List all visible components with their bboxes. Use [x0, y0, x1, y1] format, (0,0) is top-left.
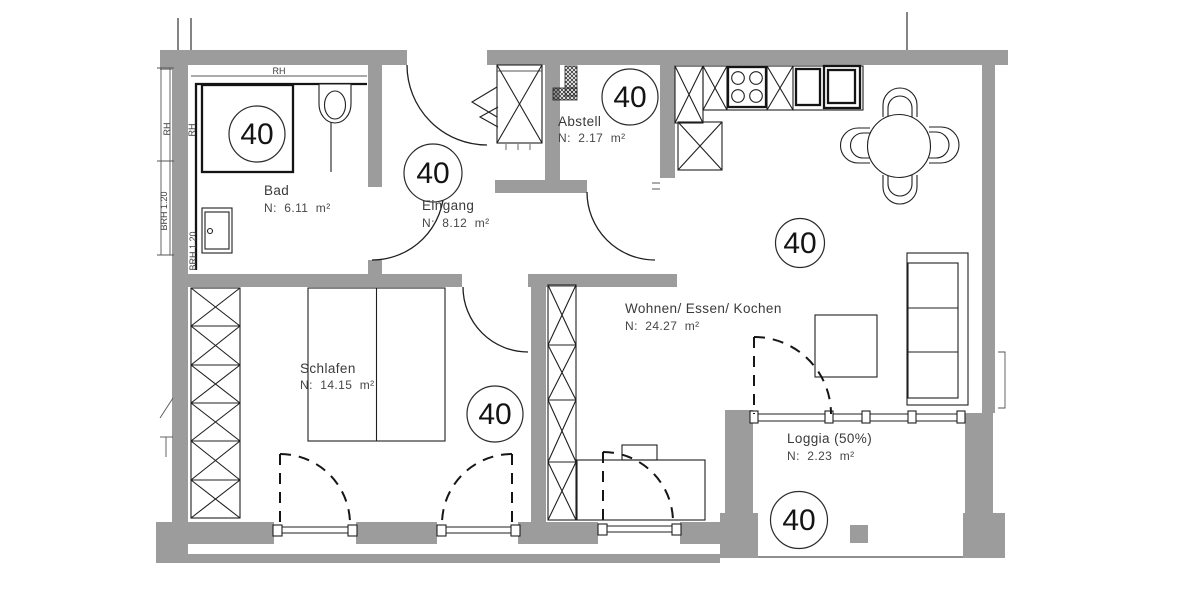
sink-basin — [828, 70, 855, 103]
room-area-bad: N: 6.11 m² — [264, 201, 331, 215]
room-area-loggia: N: 2.23 m² — [787, 449, 854, 463]
unit-number: 40 — [782, 504, 815, 537]
section-lines — [160, 12, 1005, 457]
burner-icon — [750, 72, 763, 85]
dining-table — [868, 115, 931, 178]
room-name-loggia: Loggia (50%) — [787, 431, 872, 446]
brh-label: BRH 1.20 — [159, 191, 169, 230]
room-name-schlafen: Schlafen — [300, 361, 356, 376]
downpipe-bracket — [998, 352, 1005, 408]
entry-wardrobe — [472, 65, 542, 150]
window-schlafen-left — [273, 454, 357, 536]
schlafen-wardrobe — [191, 288, 240, 518]
loggia-front — [750, 337, 965, 423]
desk-chair — [622, 445, 657, 460]
room-area-eingang: N: 8.12 m² — [422, 216, 489, 230]
unit-number: 40 — [783, 227, 816, 260]
unit-badge-eingang: 40 — [404, 144, 462, 202]
dining-set — [841, 88, 959, 204]
abstell-door-hinge — [652, 183, 660, 189]
abstell-door-swing — [587, 192, 655, 260]
armchair — [815, 315, 877, 377]
wardrobe-feet — [506, 144, 530, 150]
room-name-eingang: Eingang — [422, 198, 474, 213]
unit-number: 40 — [240, 118, 273, 151]
sofa — [907, 253, 968, 405]
burner-icon — [750, 90, 763, 103]
unit-badge-abstell: 40 — [602, 69, 658, 125]
toilet — [319, 84, 351, 123]
room-name-abstell: Abstell — [558, 114, 601, 129]
entry-door-swing — [407, 65, 487, 145]
burner-icon — [732, 72, 745, 85]
brh-label: BRH 1.20 — [188, 231, 198, 270]
schlafen-door-swing — [463, 287, 528, 352]
unit-number: 40 — [478, 398, 511, 431]
desk — [577, 445, 705, 520]
unit-number: 40 — [416, 157, 449, 190]
unit-badge-bad: 40 — [229, 106, 285, 162]
window-schlafen-right — [437, 454, 520, 536]
rh-label: RH — [273, 66, 286, 76]
kitchen — [675, 66, 863, 170]
unit-badge-schlafen: 40 — [467, 386, 523, 442]
floor-plan: 40 40 40 40 40 40 Bad N: 6.11 m² Eingang… — [0, 0, 1200, 600]
room-name-bad: Bad — [264, 183, 289, 198]
coat-hook-icon — [472, 87, 497, 117]
room-name-wohnen: Wohnen/ Essen/ Kochen — [625, 301, 782, 316]
rh-label: RH — [162, 123, 172, 136]
room-bad — [191, 76, 367, 270]
dishwasher — [796, 69, 820, 105]
room-area-schlafen: N: 14.15 m² — [300, 378, 375, 392]
burner-icon — [732, 90, 745, 103]
unit-badge-loggia: 40 — [771, 492, 828, 549]
loggia-door-swing — [754, 337, 831, 414]
unit-number: 40 — [613, 81, 646, 114]
wohnen-wardrobe — [548, 285, 576, 520]
loggia-column — [850, 525, 868, 543]
unit-badge-wohnen: 40 — [776, 219, 825, 268]
washbasin — [202, 208, 232, 253]
floor-plan-drawing: 40 40 40 40 40 40 Bad N: 6.11 m² Eingang… — [0, 0, 1200, 600]
rh-label: RH — [187, 124, 197, 137]
coat-hook-icon — [480, 107, 498, 127]
room-area-abstell: N: 2.17 m² — [558, 131, 625, 145]
room-area-wohnen: N: 24.27 m² — [625, 319, 700, 333]
